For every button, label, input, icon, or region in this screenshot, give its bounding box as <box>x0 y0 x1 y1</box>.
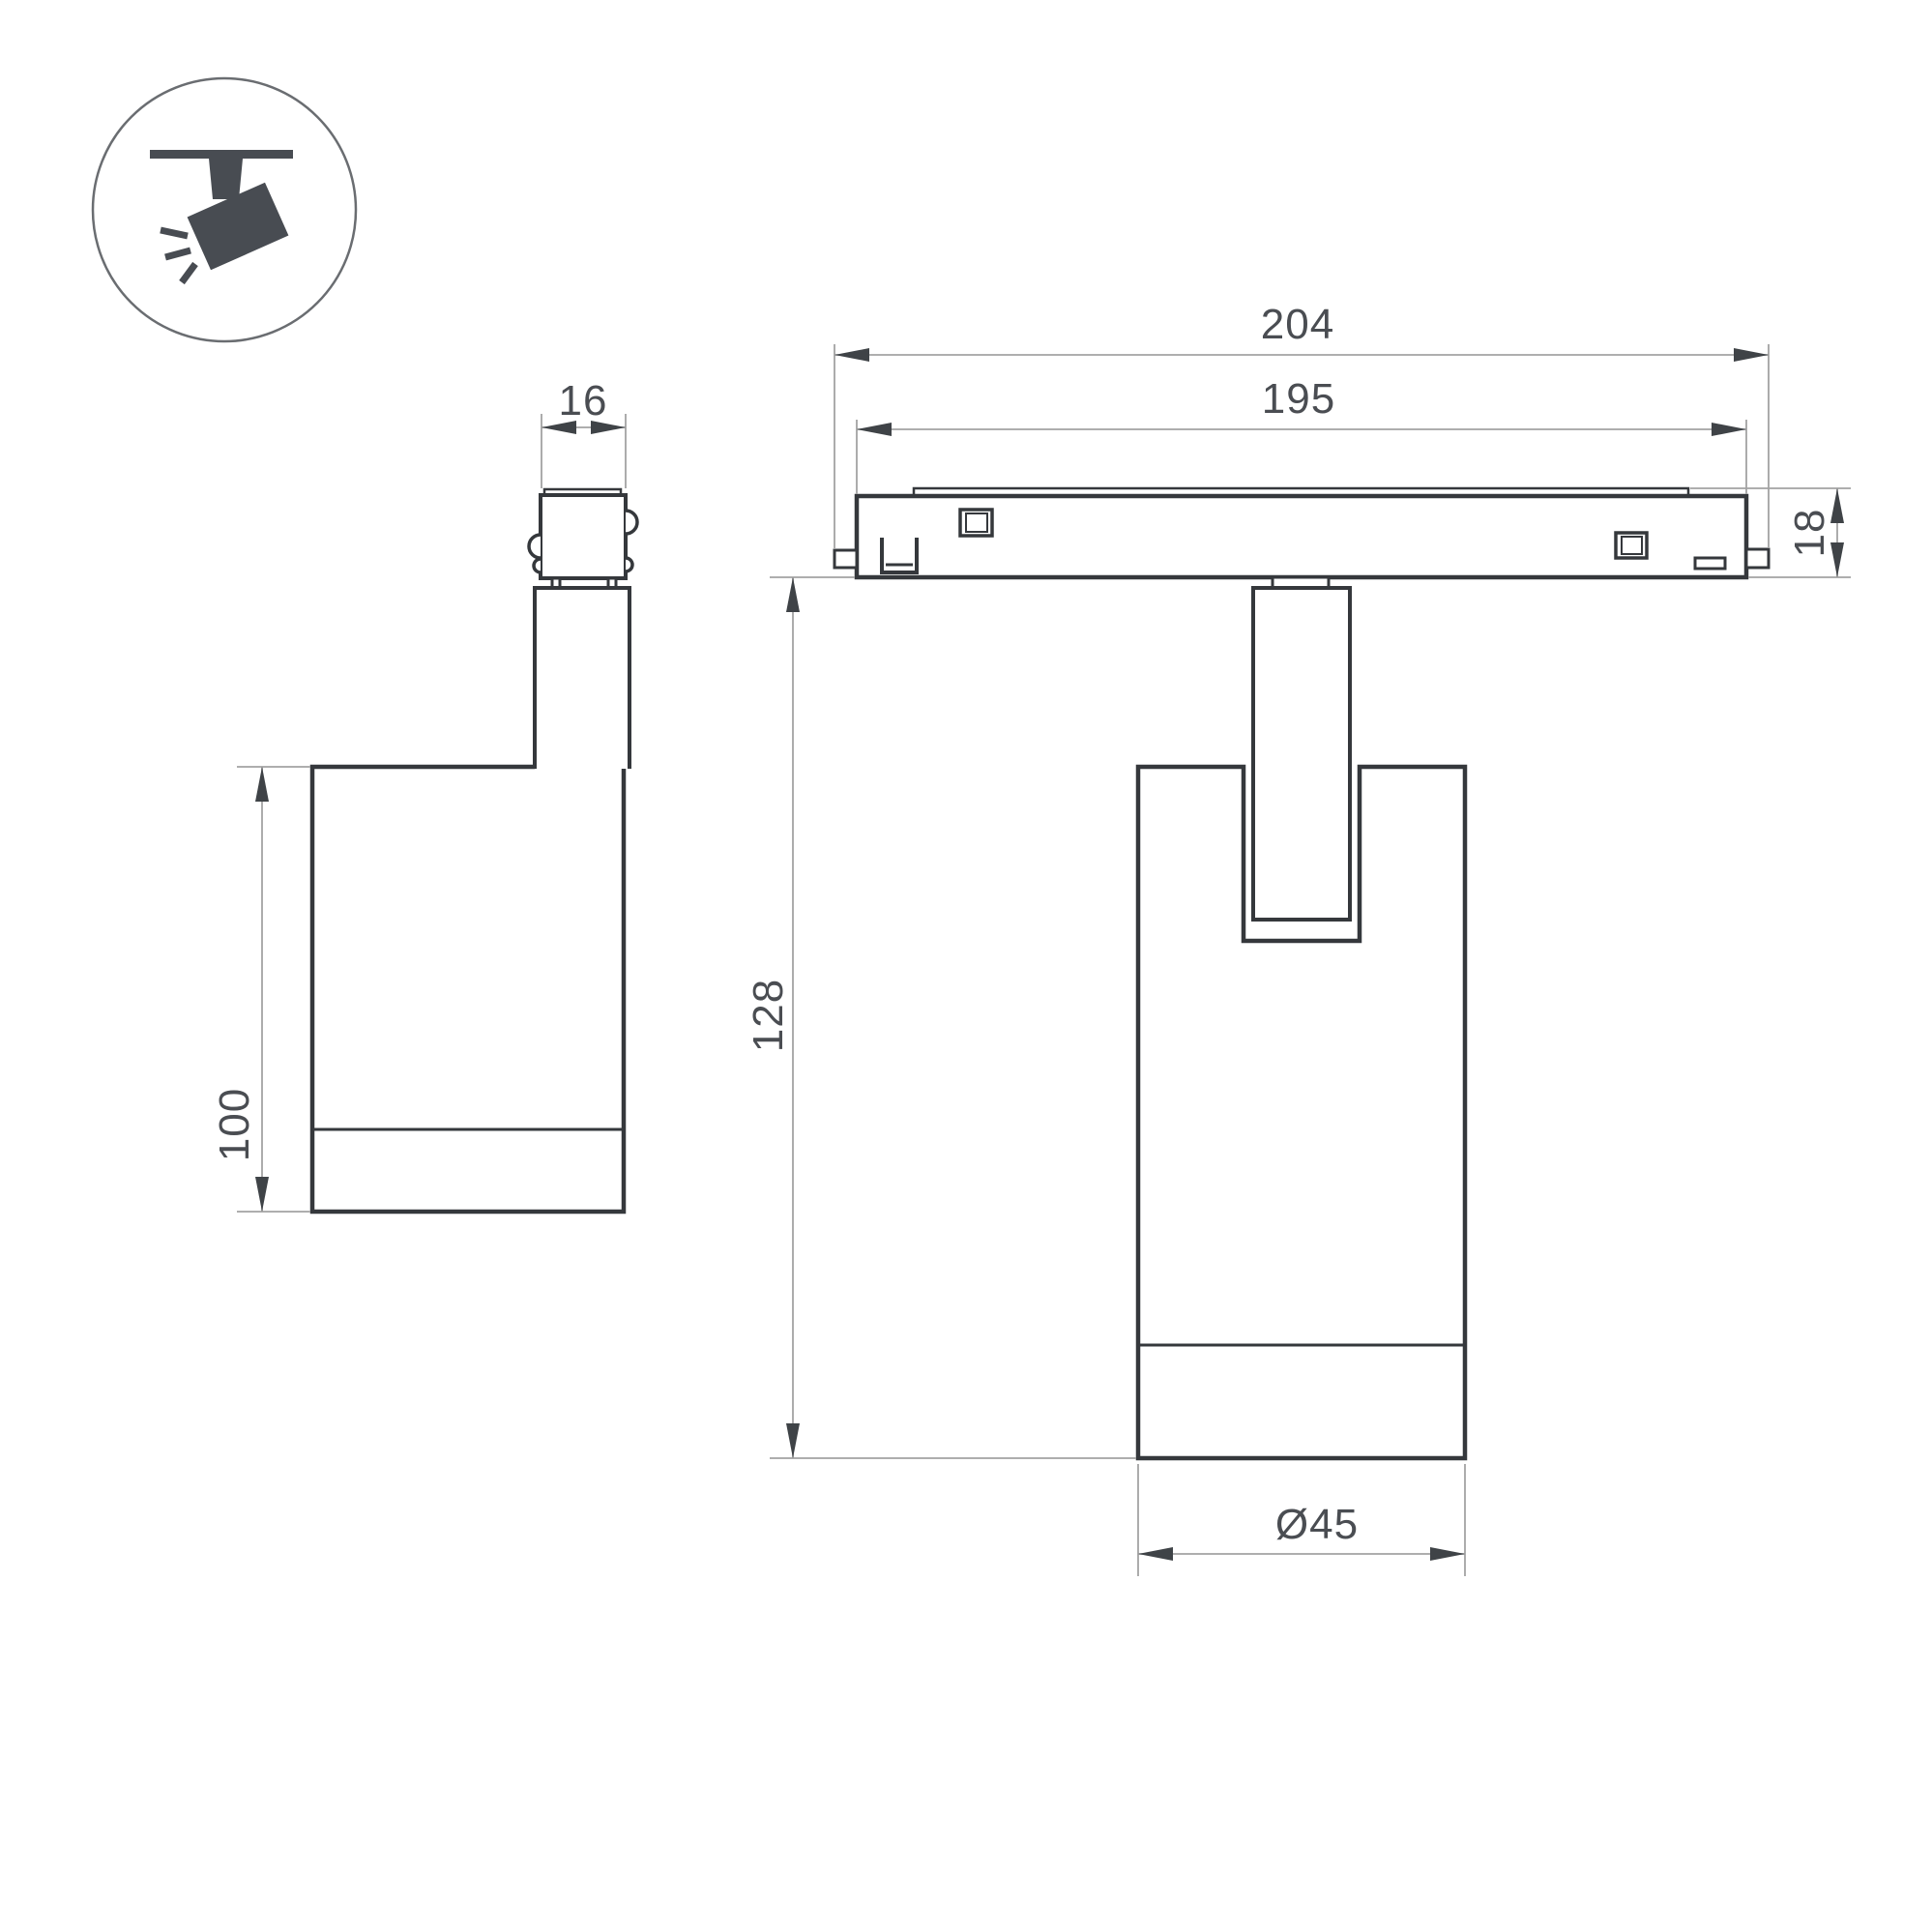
icon-mount-stem <box>209 159 243 199</box>
arrow-128-top <box>786 577 800 612</box>
technical-drawing-svg: 16 204 195 18 128 100 Ø45 <box>0 0 1932 1932</box>
arrow-195-left <box>857 423 892 436</box>
drawing-canvas: 16 204 195 18 128 100 Ø45 <box>0 0 1932 1932</box>
dim-label-track-height: 18 <box>1786 509 1833 558</box>
side-contact-bump-left-small <box>534 559 541 572</box>
track-contact-right-inner <box>1622 537 1642 554</box>
arrow-195-right <box>1712 423 1746 436</box>
dim-label-connector-width: 16 <box>559 377 608 424</box>
front-stem <box>1253 588 1350 920</box>
icon-ceiling-track <box>150 150 293 159</box>
track-contact-left-inner <box>966 513 987 532</box>
dim-label-track-body-width: 195 <box>1262 375 1335 423</box>
side-view <box>312 489 637 1212</box>
side-contact-bump-left-large <box>529 535 541 558</box>
front-view <box>834 488 1769 1458</box>
track-slot-right <box>1695 558 1725 569</box>
dim-label-body-height: 100 <box>211 1088 258 1161</box>
arrow-128-bottom <box>786 1423 800 1458</box>
side-contact-bump-right-large <box>626 511 637 534</box>
dim-label-track-overall-width: 204 <box>1261 301 1334 348</box>
arrow-204-left <box>834 348 869 362</box>
arrow-100-top <box>255 767 269 802</box>
side-neck <box>535 588 629 769</box>
side-contact-bump-right-small <box>626 558 632 571</box>
side-lamp-body <box>312 767 624 1212</box>
dim-label-diameter: Ø45 <box>1275 1501 1359 1548</box>
track-spotlight-icon <box>93 78 356 341</box>
arrow-204-right <box>1734 348 1769 362</box>
track-end-tab-right <box>1746 549 1769 568</box>
dim-label-overall-height: 128 <box>745 979 792 1052</box>
arrow-100-bottom <box>255 1177 269 1212</box>
side-connector-box <box>541 495 626 578</box>
track-end-tab-left <box>834 550 857 568</box>
arrow-45-right <box>1430 1547 1465 1561</box>
arrow-45-left <box>1138 1547 1173 1561</box>
